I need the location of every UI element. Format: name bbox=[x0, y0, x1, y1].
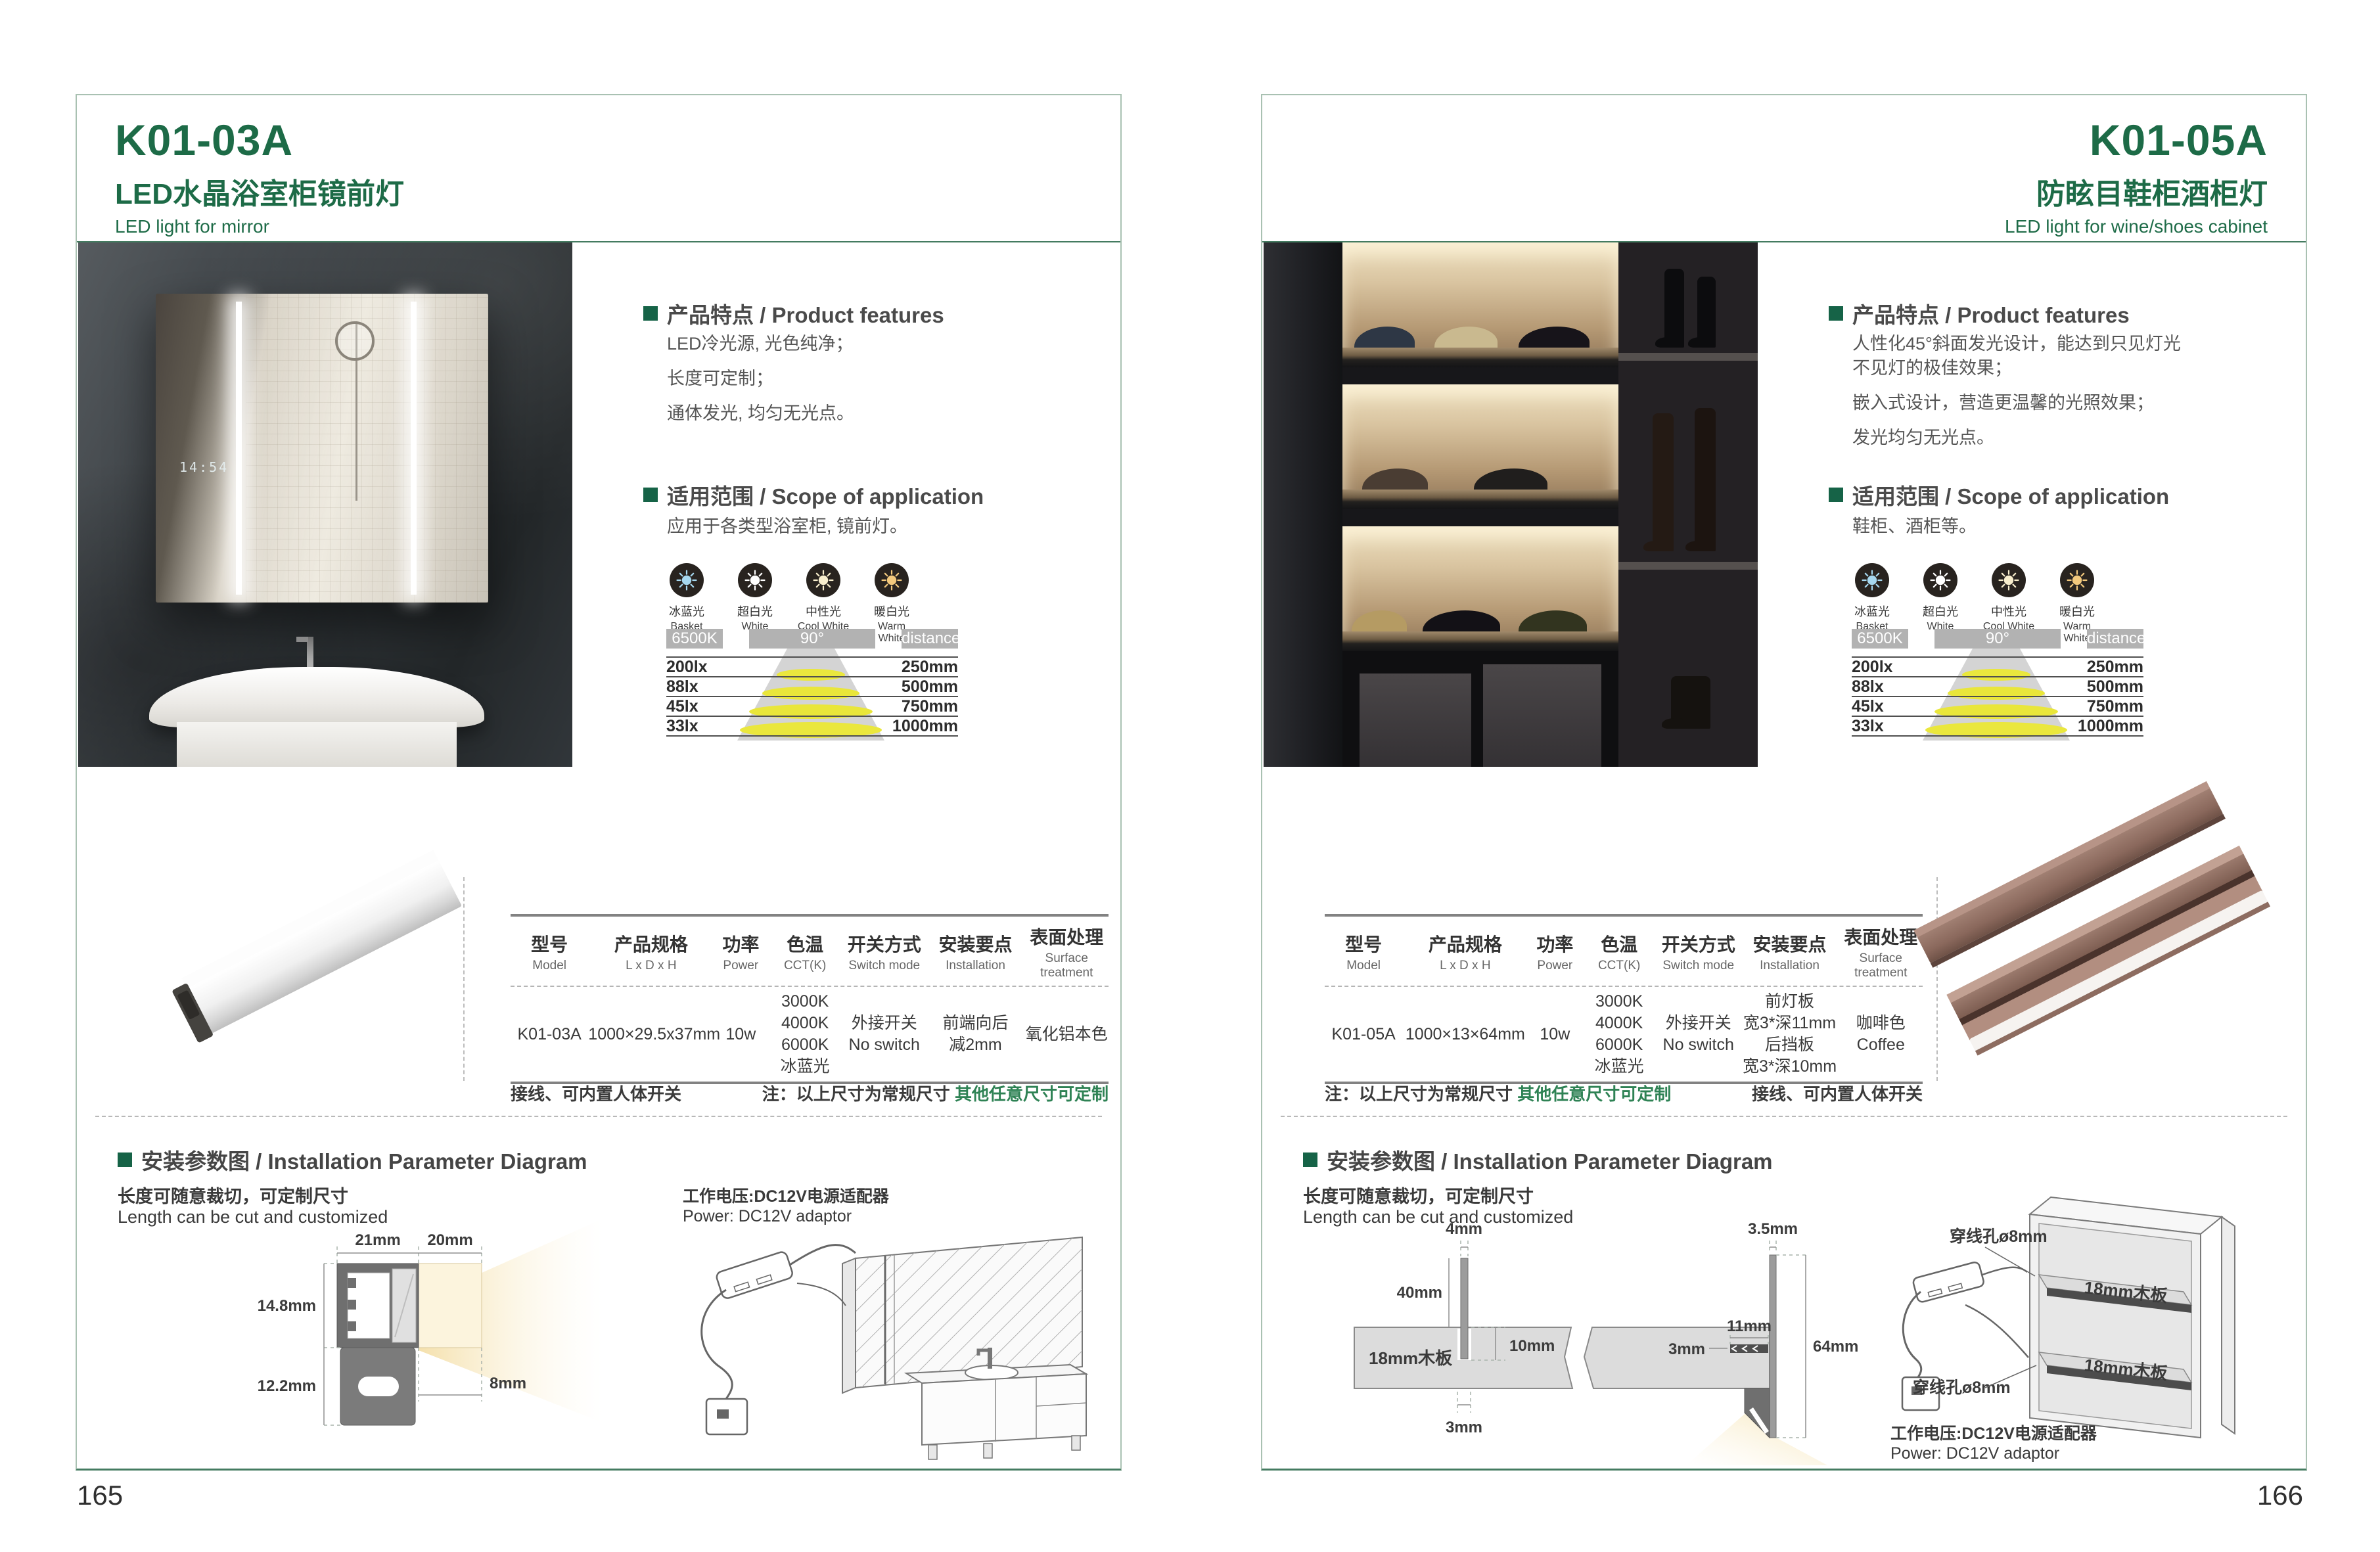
feature-line: 嵌入式设计，营造更温馨的光照效果； bbox=[1852, 391, 2260, 415]
page-number-left: 165 bbox=[77, 1480, 123, 1511]
dashed-divider bbox=[463, 877, 465, 1081]
led-strip-left bbox=[236, 302, 242, 595]
dim-14-8mm: 14.8mm bbox=[258, 1297, 316, 1315]
product-render-profile bbox=[1946, 871, 2300, 1087]
size-note-highlight: 其他任意尺寸可定制 bbox=[1517, 1084, 1671, 1104]
square-bullet-icon bbox=[1829, 488, 1843, 502]
spec-table-header: 型号Model 产品规格L x D x H 功率Power 色温CCT(K) 开… bbox=[1325, 917, 1923, 987]
boot-silhouette bbox=[1653, 413, 1674, 551]
cell-cct: 3000K 4000K 6000K 冰蓝光 bbox=[767, 991, 842, 1078]
feature-line: 发光均匀无光点。 bbox=[1852, 426, 2260, 450]
feature-line: 人性化45°斜面发光设计，能达到只见灯光 不见灯的极佳效果； bbox=[1852, 332, 2260, 380]
features-heading: 产品特点 / Product features bbox=[1829, 298, 2130, 329]
cell-surface: 咖啡色 Coffee bbox=[1839, 1013, 1923, 1056]
cell-power: 10w bbox=[714, 1024, 767, 1045]
dim-8mm: 8mm bbox=[490, 1375, 526, 1392]
basin-top bbox=[149, 667, 484, 727]
cell-installation: 前灯板 宽3*深11mm 后挡板 宽3*深10mm bbox=[1740, 991, 1839, 1078]
scope-text: 鞋柜、酒柜等。 bbox=[1852, 512, 1977, 537]
photometry-header: 6500K 90° distance bbox=[666, 629, 958, 649]
product-photo-shoe-cabinet bbox=[1264, 242, 1758, 767]
cross-section-diagram: 21mm 20mm 14.8mm 12.2mm 8mm bbox=[208, 1225, 603, 1455]
sun-icon bbox=[2060, 563, 2094, 597]
product-title-cn: LED水晶浴室柜镜前灯 bbox=[115, 170, 404, 212]
boot-column bbox=[1618, 242, 1758, 767]
board-label: 18mm木板 bbox=[1369, 1348, 1452, 1368]
photometry-row: 33lx 1000mm bbox=[666, 716, 958, 737]
cable-hole-label: 穿线孔ø8mm bbox=[1950, 1227, 2048, 1246]
size-note: 注：以上尺寸为常规尺寸 其他任意尺寸可定制 bbox=[1325, 1081, 1671, 1105]
dashed-separator bbox=[1281, 1116, 2287, 1117]
lit-shelf-column bbox=[1342, 242, 1618, 767]
dim-11mm: 11mm bbox=[1727, 1317, 1772, 1335]
install-heading: 安装参数图 / Installation Parameter Diagram bbox=[118, 1144, 587, 1175]
photometry-table: 6500K 90° distance 200lx 250mm 88lx bbox=[666, 629, 958, 737]
feature-line: 通体发光, 均匀无光点。 bbox=[667, 401, 1074, 426]
page-header: K01-05A 防眩目鞋柜酒柜灯 LED light for wine/shoe… bbox=[1262, 95, 2306, 242]
cct-badge: 6500K bbox=[666, 629, 723, 649]
distance-badge: distance bbox=[2087, 629, 2143, 649]
led-mirror: 14:54 bbox=[156, 294, 488, 603]
cell-model: K01-05A bbox=[1325, 1024, 1402, 1045]
features-heading: 产品特点 / Product features bbox=[643, 298, 944, 329]
basin-cabinet bbox=[177, 722, 457, 767]
dashed-separator bbox=[95, 1116, 1102, 1117]
dim-40mm: 40mm bbox=[1397, 1284, 1442, 1302]
cable-hole-label: 穿线孔ø8mm bbox=[1913, 1378, 2011, 1397]
table-notes: 注：以上尺寸为常规尺寸 其他任意尺寸可定制 接线、可内置人体开关 bbox=[1325, 1081, 1923, 1105]
photometry-row: 45lx 750mm bbox=[666, 696, 958, 716]
install-heading: 安装参数图 / Installation Parameter Diagram bbox=[1303, 1144, 1773, 1175]
sun-icon bbox=[670, 563, 704, 597]
page-k01-03a: K01-03A LED水晶浴室柜镜前灯 LED light for mirror… bbox=[76, 94, 1122, 1471]
cell-size: 1000×29.5x37mm bbox=[588, 1024, 714, 1045]
size-note-highlight: 其他任意尺寸可定制 bbox=[955, 1084, 1109, 1104]
shelf-bay bbox=[1342, 526, 1618, 651]
cell-installation: 前端向后 减2mm bbox=[926, 1013, 1024, 1056]
cell-switch: 外接开关 No switch bbox=[1657, 1013, 1740, 1056]
dim-4mm: 4mm bbox=[1446, 1220, 1482, 1238]
photometry-row: 88lx 500mm bbox=[666, 676, 958, 696]
sun-icon bbox=[1855, 563, 1889, 597]
product-render-profile bbox=[156, 871, 471, 1087]
wiring-note: 接线、可内置人体开关 bbox=[511, 1081, 681, 1105]
installation-illustration bbox=[668, 1212, 1102, 1462]
power-note-cn: 工作电压:DC12V电源适配器 bbox=[1890, 1425, 2097, 1443]
shelf-board bbox=[1342, 490, 1618, 509]
cell-model: K01-03A bbox=[511, 1024, 588, 1045]
wiring-note: 接线、可内置人体开关 bbox=[1752, 1081, 1923, 1105]
dim-10mm: 10mm bbox=[1509, 1337, 1555, 1355]
distance-badge: distance bbox=[902, 629, 958, 649]
sun-icon bbox=[738, 563, 772, 597]
page-number-right: 166 bbox=[2257, 1480, 2303, 1511]
spec-table-row: K01-03A 1000×29.5x37mm 10w 3000K 4000K 6… bbox=[511, 987, 1109, 1082]
dim-12-2mm: 12.2mm bbox=[258, 1377, 316, 1395]
shelf-board bbox=[1342, 631, 1618, 651]
feature-line: 长度可定制； bbox=[667, 367, 1074, 391]
page-k01-05a: K01-05A 防眩目鞋柜酒柜灯 LED light for wine/shoe… bbox=[1261, 94, 2307, 1471]
sun-icon bbox=[875, 563, 909, 597]
cell-power: 10w bbox=[1528, 1024, 1582, 1045]
shelf-bay bbox=[1342, 242, 1618, 367]
length-note-en: Length can be cut and customized bbox=[118, 1207, 388, 1227]
cell-size: 1000×13×64mm bbox=[1402, 1024, 1528, 1045]
square-bullet-icon bbox=[643, 306, 658, 321]
product-title-en: LED light for mirror bbox=[115, 216, 404, 237]
page-header: K01-03A LED水晶浴室柜镜前灯 LED light for mirror bbox=[77, 95, 1120, 242]
photometry-row: 45lx 750mm bbox=[1852, 696, 2143, 716]
shelf-board bbox=[1342, 348, 1618, 367]
boot-silhouette bbox=[1671, 676, 1710, 729]
square-bullet-icon bbox=[1303, 1153, 1317, 1167]
cabinet-door bbox=[1264, 242, 1342, 767]
cabinet-line-drawing: 18mm木板 18mm木板 bbox=[2030, 1197, 2235, 1438]
model-number: K01-05A bbox=[2005, 115, 2268, 165]
sun-icon bbox=[806, 563, 840, 597]
photometry-table: 6500K 90° distance 200lx 250mm 88lx bbox=[1852, 629, 2143, 737]
photometry-header: 6500K 90° distance bbox=[1852, 629, 2143, 649]
faucet bbox=[307, 637, 313, 671]
cct-badge: 6500K bbox=[1852, 629, 1908, 649]
features-list: LED冷光源, 光色纯净； 长度可定制； 通体发光, 均匀无光点。 bbox=[667, 332, 1074, 436]
dim-3-5mm: 3.5mm bbox=[1748, 1220, 1798, 1238]
spec-table: 型号Model 产品规格L x D x H 功率Power 色温CCT(K) 开… bbox=[1325, 914, 1923, 1084]
model-number: K01-03A bbox=[115, 115, 404, 165]
sun-icon bbox=[1923, 563, 1957, 597]
boot-silhouette bbox=[1697, 277, 1716, 348]
cell-switch: 外接开关 No switch bbox=[842, 1013, 926, 1056]
sun-icon bbox=[1992, 563, 2026, 597]
square-bullet-icon bbox=[643, 488, 658, 502]
features-list: 人性化45°斜面发光设计，能达到只见灯光 不见灯的极佳效果； 嵌入式设计，营造更… bbox=[1852, 332, 2260, 461]
product-title-en: LED light for wine/shoes cabinet bbox=[2005, 216, 2268, 237]
size-note: 注：以上尺寸为常规尺寸 其他任意尺寸可定制 bbox=[762, 1081, 1109, 1105]
led-strip-right bbox=[411, 302, 417, 595]
dim-20mm: 20mm bbox=[427, 1231, 472, 1249]
boot-silhouette bbox=[1664, 269, 1684, 348]
vanity-basin bbox=[149, 667, 484, 767]
spec-table: 型号Model 产品规格L x D x H 功率Power 色温CCT(K) 开… bbox=[511, 914, 1109, 1084]
catalog-spread: K01-03A LED水晶浴室柜镜前灯 LED light for mirror… bbox=[0, 0, 2380, 1552]
mirror-clock: 14:54 bbox=[179, 459, 229, 475]
beam-angle-badge: 90° bbox=[749, 629, 875, 649]
cell-surface: 氧化铝本色 bbox=[1025, 1024, 1109, 1045]
power-note-en: Power: DC12V adaptor bbox=[1890, 1444, 2059, 1462]
photometry-row: 88lx 500mm bbox=[1852, 676, 2143, 696]
cell-cct: 3000K 4000K 6000K 冰蓝光 bbox=[1582, 991, 1657, 1078]
installation-illustration: 18mm木板 18mm木板 穿线孔ø8mm 穿线孔ø8mm 工作电压:DC12V… bbox=[1887, 1176, 2294, 1462]
product-photo-mirror: 14:54 bbox=[78, 242, 572, 767]
spec-table-row: K01-05A 1000×13×64mm 10w 3000K 4000K 600… bbox=[1325, 987, 1923, 1082]
photometry-row: 200lx 250mm bbox=[666, 656, 958, 676]
dashed-divider bbox=[1936, 877, 1938, 1081]
scope-heading: 适用范围 / Scope of application bbox=[1829, 479, 2169, 511]
length-note-cn: 长度可随意裁切，可定制尺寸 bbox=[118, 1182, 348, 1208]
square-bullet-icon bbox=[118, 1153, 132, 1167]
dim-64mm: 64mm bbox=[1813, 1338, 1858, 1356]
length-note-cn: 长度可随意裁切，可定制尺寸 bbox=[1303, 1182, 1534, 1208]
boot-silhouette bbox=[1695, 408, 1716, 551]
dim-21mm: 21mm bbox=[355, 1231, 400, 1249]
product-title-cn: 防眩目鞋柜酒柜灯 bbox=[2005, 170, 2268, 212]
scope-heading: 适用范围 / Scope of application bbox=[643, 479, 984, 511]
photometry-row: 33lx 1000mm bbox=[1852, 716, 2143, 737]
drawer-area bbox=[1342, 651, 1618, 767]
power-adaptor bbox=[702, 1245, 856, 1434]
dim-3mm-strip: 3mm bbox=[1668, 1340, 1705, 1358]
dim-3mm-slot: 3mm bbox=[1446, 1419, 1482, 1436]
spec-table-header: 型号Model 产品规格L x D x H 功率Power 色温CCT(K) 开… bbox=[511, 917, 1109, 987]
scope-text: 应用于各类型浴室柜, 镜前灯。 bbox=[667, 512, 907, 537]
square-bullet-icon bbox=[1829, 306, 1843, 321]
power-note-cn: 工作电压:DC12V电源适配器 bbox=[683, 1183, 889, 1207]
feature-line: LED冷光源, 光色纯净； bbox=[667, 332, 1074, 356]
table-notes: 接线、可内置人体开关 注：以上尺寸为常规尺寸 其他任意尺寸可定制 bbox=[511, 1081, 1109, 1105]
photometry-row: 200lx 250mm bbox=[1852, 656, 2143, 676]
cross-section-diagram: 4mm 3.5mm 40mm 18mm木板 10mm 3mm 11mm 3mm … bbox=[1308, 1216, 1860, 1465]
shelf-bay bbox=[1342, 384, 1618, 509]
beam-angle-badge: 90° bbox=[1934, 629, 2061, 649]
